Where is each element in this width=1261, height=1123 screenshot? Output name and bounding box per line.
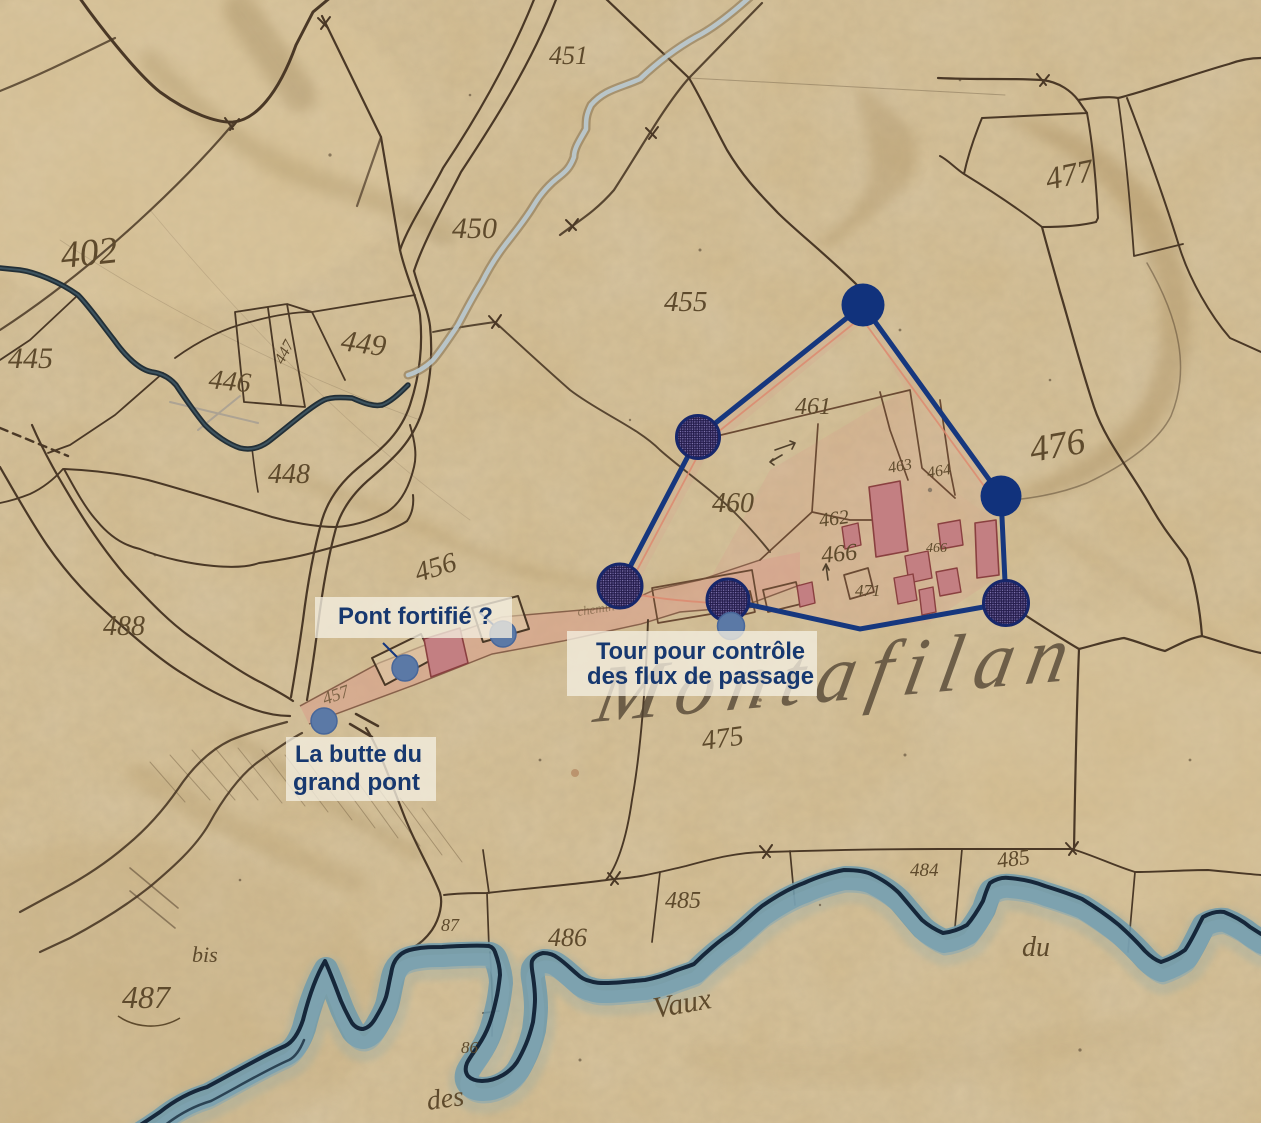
svg-text:450: 450: [452, 212, 497, 245]
svg-text:86: 86: [461, 1038, 479, 1057]
svg-text:449: 449: [339, 324, 388, 363]
svg-text:402: 402: [59, 229, 120, 277]
svg-text:445: 445: [8, 342, 53, 375]
svg-text:du: du: [1022, 932, 1050, 963]
svg-text:des: des: [425, 1081, 466, 1117]
svg-text:484: 484: [910, 860, 939, 881]
svg-text:Tour pour contrôle: Tour pour contrôle: [596, 638, 805, 665]
svg-text:460: 460: [712, 488, 754, 519]
svg-text:446: 446: [207, 364, 252, 399]
svg-text:471: 471: [855, 581, 881, 600]
svg-text:461: 461: [795, 394, 831, 420]
svg-text:451: 451: [549, 41, 588, 70]
svg-text:466: 466: [926, 541, 947, 556]
svg-text:Pont fortifié ?: Pont fortifié ?: [338, 603, 493, 630]
svg-text:462: 462: [818, 506, 851, 532]
svg-text:466: 466: [820, 539, 859, 569]
svg-text:La butte du: La butte du: [295, 741, 422, 768]
svg-text:grand pont: grand pont: [293, 769, 420, 796]
svg-text:448: 448: [268, 459, 310, 490]
svg-text:87: 87: [441, 915, 460, 935]
svg-text:485: 485: [995, 844, 1031, 873]
svg-text:488: 488: [103, 611, 145, 642]
svg-text:486: 486: [548, 923, 587, 952]
svg-text:des flux de passage: des flux de passage: [587, 663, 814, 690]
svg-text:bis: bis: [192, 942, 218, 967]
svg-text:485: 485: [665, 888, 701, 914]
svg-text:455: 455: [664, 286, 708, 318]
svg-text:487: 487: [122, 979, 172, 1015]
